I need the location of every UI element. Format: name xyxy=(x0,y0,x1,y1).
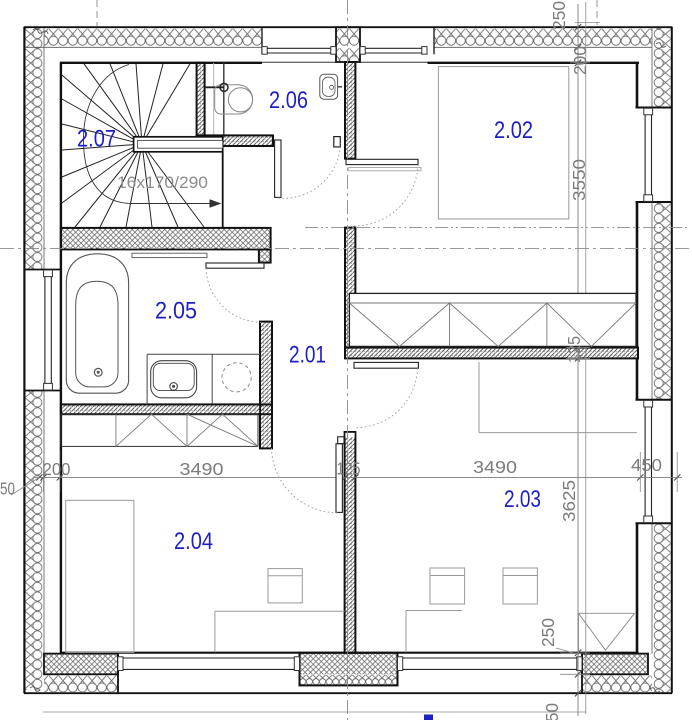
svg-text:2.04: 2.04 xyxy=(174,528,213,555)
svg-text:50: 50 xyxy=(0,479,15,499)
svg-text:2.01: 2.01 xyxy=(289,342,326,369)
svg-text:2.02: 2.02 xyxy=(494,117,533,144)
svg-text:125: 125 xyxy=(564,336,584,363)
svg-text:50: 50 xyxy=(542,703,562,720)
svg-text:3550: 3550 xyxy=(569,159,589,201)
svg-text:2.06: 2.06 xyxy=(269,87,308,114)
svg-text:250: 250 xyxy=(549,1,569,30)
svg-text:450: 450 xyxy=(631,455,662,475)
svg-text:2.05: 2.05 xyxy=(155,298,197,325)
svg-text:16x170/290: 16x170/290 xyxy=(117,173,208,192)
svg-text:125: 125 xyxy=(337,459,361,479)
svg-text:3625: 3625 xyxy=(559,480,579,522)
svg-text:250: 250 xyxy=(538,618,558,647)
svg-text:3490: 3490 xyxy=(180,459,224,479)
svg-text:200: 200 xyxy=(570,46,590,75)
svg-text:2.03: 2.03 xyxy=(504,486,541,513)
svg-text:3490: 3490 xyxy=(473,457,517,477)
svg-text:2.07: 2.07 xyxy=(77,126,116,153)
svg-text:200: 200 xyxy=(43,459,71,479)
